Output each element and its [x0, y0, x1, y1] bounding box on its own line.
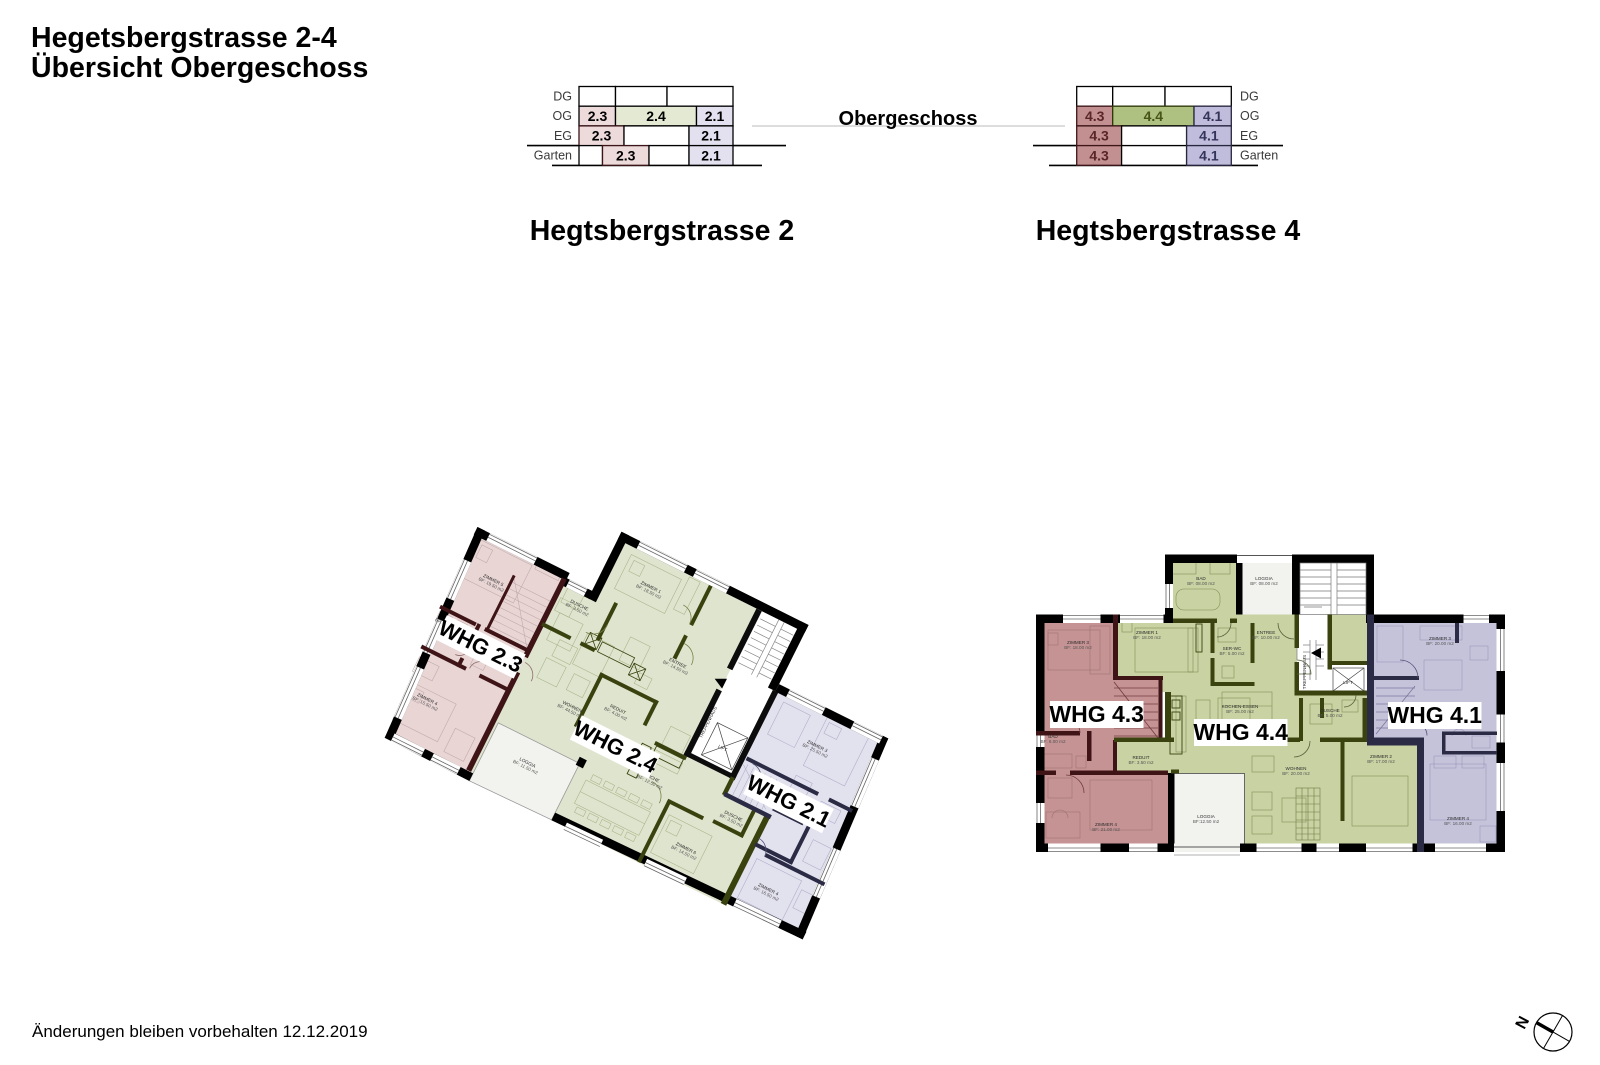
svg-text:4.3: 4.3 — [1085, 108, 1105, 124]
svg-text:OG: OG — [1240, 109, 1259, 123]
svg-text:DG: DG — [1240, 90, 1259, 104]
svg-text:BF: 17.00 m2: BF: 17.00 m2 — [1367, 759, 1395, 764]
svg-text:WHG 4.4: WHG 4.4 — [1193, 719, 1288, 745]
svg-text:4.1: 4.1 — [1203, 108, 1223, 124]
svg-text:BF: 08.00 m2: BF: 08.00 m2 — [1187, 581, 1215, 586]
svg-text:Übersicht Obergeschoss: Übersicht Obergeschoss — [31, 52, 368, 84]
svg-text:4.1: 4.1 — [1199, 128, 1219, 144]
svg-text:BF: 21.00 m2: BF: 21.00 m2 — [1092, 827, 1120, 832]
svg-text:EG: EG — [554, 129, 572, 143]
svg-text:EG: EG — [1240, 129, 1258, 143]
svg-text:Hegetsbergstrasse 2-4: Hegetsbergstrasse 2-4 — [31, 22, 337, 54]
svg-text:OG: OG — [553, 109, 572, 123]
svg-text:4.1: 4.1 — [1199, 147, 1219, 163]
svg-text:BF: 25.00 m2: BF: 25.00 m2 — [1226, 709, 1254, 714]
svg-text:2.1: 2.1 — [701, 147, 721, 163]
svg-text:2.4: 2.4 — [646, 108, 666, 124]
svg-text:2.3: 2.3 — [616, 147, 636, 163]
svg-text:BF: 5.00 m2: BF: 5.00 m2 — [1219, 651, 1244, 656]
svg-text:Obergeschoss: Obergeschoss — [839, 108, 978, 130]
svg-text:4.3: 4.3 — [1089, 128, 1109, 144]
svg-text:BF:12.50 m2: BF:12.50 m2 — [1193, 819, 1220, 824]
svg-text:2.1: 2.1 — [701, 128, 721, 144]
svg-text:BF: 10.00 m2: BF: 10.00 m2 — [1252, 635, 1280, 640]
svg-text:2.3: 2.3 — [592, 128, 612, 144]
svg-text:BF: 6.00 m2: BF: 6.00 m2 — [1040, 739, 1065, 744]
svg-text:TREPPENHAUS: TREPPENHAUS — [1302, 655, 1307, 689]
svg-text:WHG 4.1: WHG 4.1 — [1387, 702, 1482, 728]
svg-text:DG: DG — [553, 90, 572, 104]
svg-text:N: N — [1513, 1014, 1533, 1032]
svg-text:Hegtsbergstrasse 2: Hegtsbergstrasse 2 — [530, 215, 795, 247]
svg-text:4.3: 4.3 — [1089, 147, 1109, 163]
svg-text:BF: 20.00 m2: BF: 20.00 m2 — [1282, 771, 1310, 776]
svg-text:BF: 3.50 m2: BF: 3.50 m2 — [1128, 760, 1153, 765]
svg-text:BF: 18.00 m2: BF: 18.00 m2 — [1133, 635, 1161, 640]
svg-text:4.4: 4.4 — [1144, 108, 1164, 124]
svg-text:Änderungen bleiben vorbehalten: Änderungen bleiben vorbehalten 12.12.201… — [32, 1022, 368, 1041]
svg-text:Hegtsbergstrasse 4: Hegtsbergstrasse 4 — [1036, 215, 1301, 247]
svg-text:WHG 4.3: WHG 4.3 — [1049, 701, 1144, 727]
svg-text:Garten: Garten — [1240, 149, 1278, 163]
svg-text:2.3: 2.3 — [588, 108, 608, 124]
svg-text:BF: 18.00 m2: BF: 18.00 m2 — [1064, 645, 1092, 650]
svg-text:BF: 20.00 m2: BF: 20.00 m2 — [1426, 641, 1454, 646]
svg-text:Garten: Garten — [534, 149, 572, 163]
svg-text:2.1: 2.1 — [705, 108, 725, 124]
svg-text:LIFT: LIFT — [1343, 680, 1353, 685]
svg-text:BF: 16.00 m2: BF: 16.00 m2 — [1444, 821, 1472, 826]
svg-text:BF: 08.00 m2: BF: 08.00 m2 — [1250, 581, 1278, 586]
svg-text:BF: 5.00 m2: BF: 5.00 m2 — [1317, 713, 1342, 718]
